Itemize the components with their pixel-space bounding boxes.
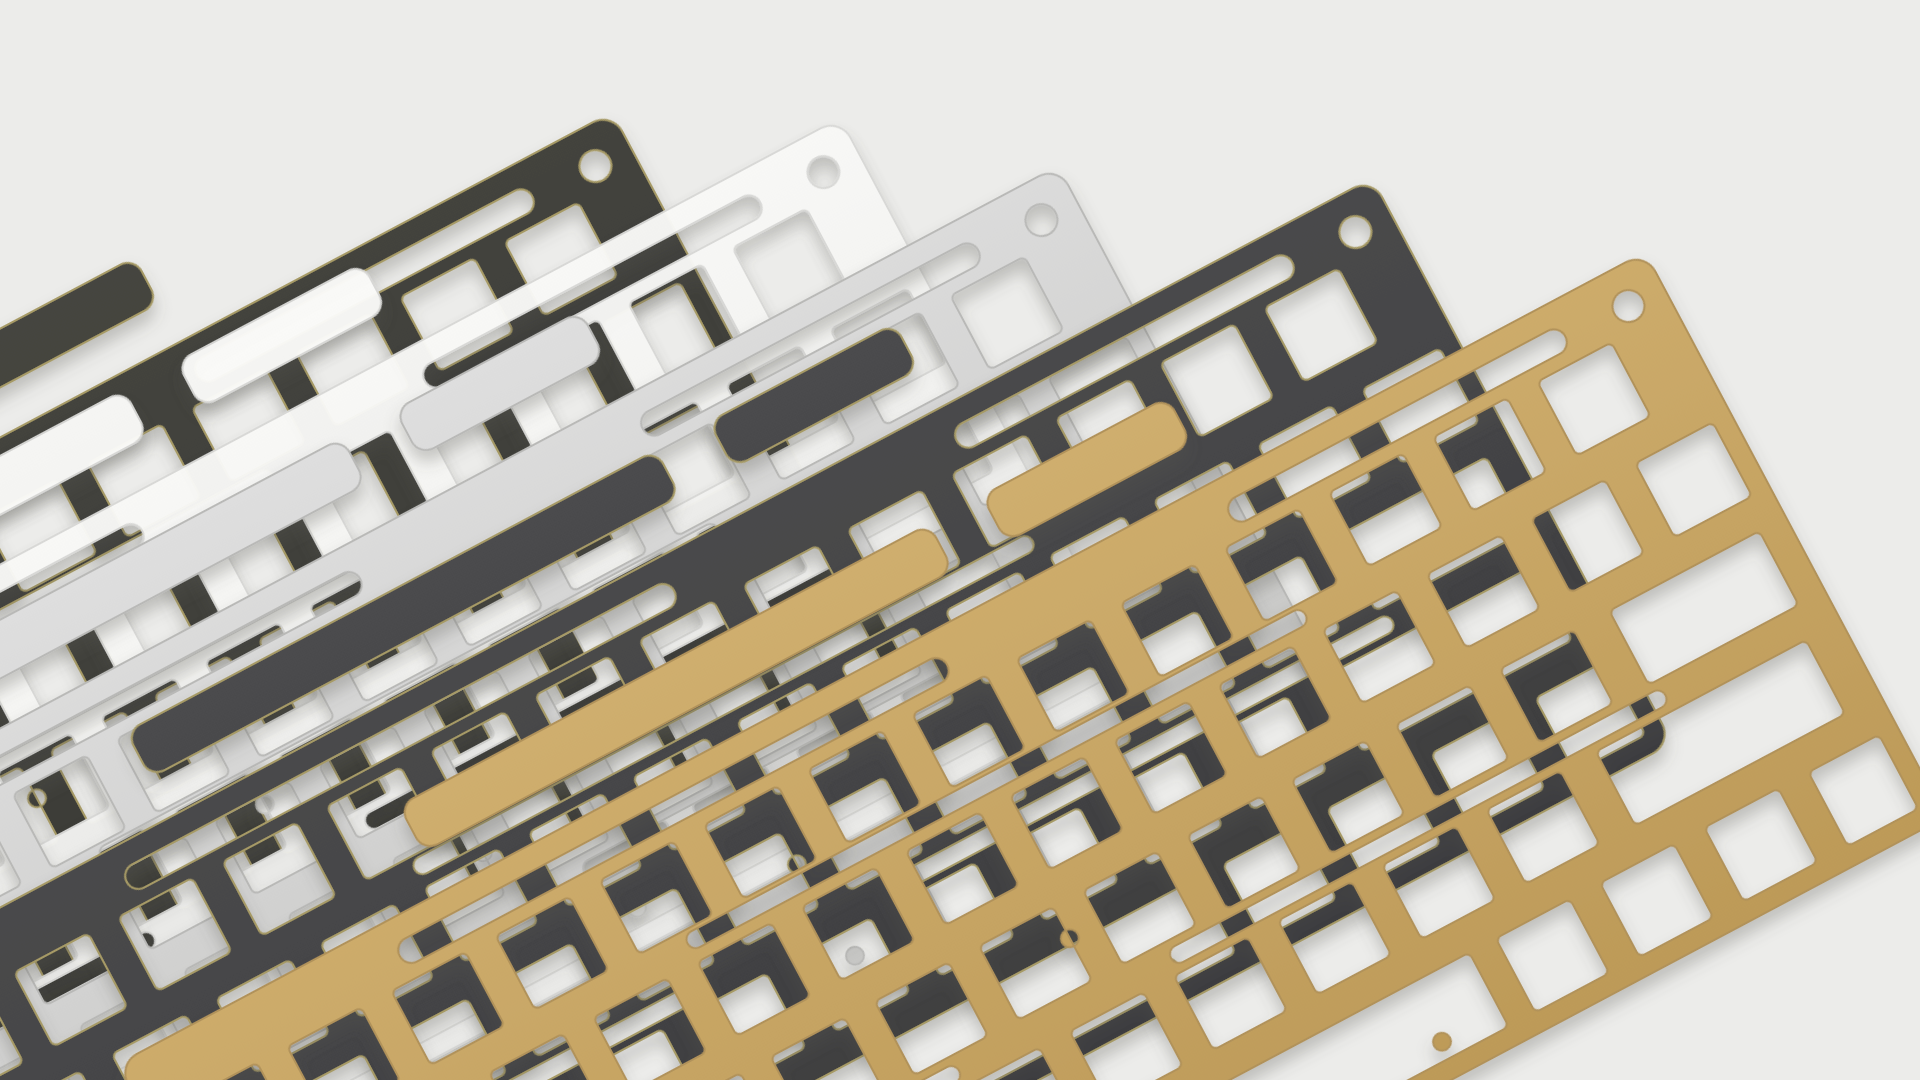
plates-svg: [0, 0, 1920, 1080]
keyboard-plates-render: [0, 0, 1920, 1080]
